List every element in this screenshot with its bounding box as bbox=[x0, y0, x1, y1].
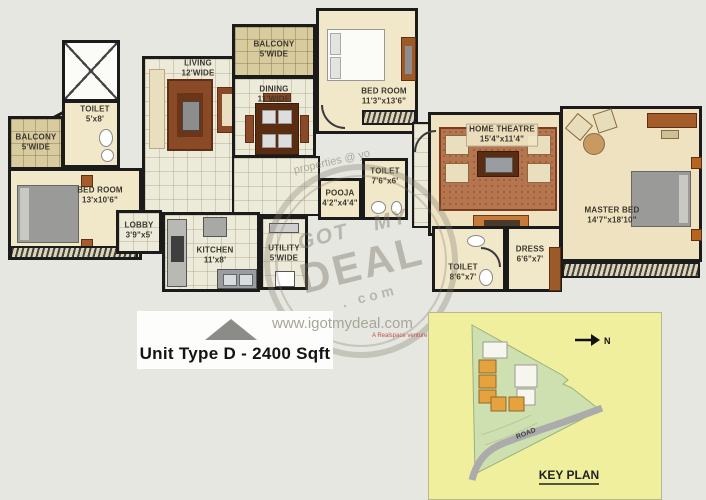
desk-chair bbox=[661, 130, 679, 139]
sofa bbox=[149, 69, 165, 149]
lounge-chair bbox=[592, 108, 617, 133]
theatre-seat bbox=[527, 163, 551, 183]
roof-triangle-icon bbox=[205, 319, 257, 340]
unit-type-label: Unit Type D - 2400 Sqft bbox=[137, 344, 333, 364]
north-label: N bbox=[604, 336, 611, 346]
toilet-wc-icon bbox=[479, 269, 493, 286]
room-dim: 6'6"x7' bbox=[516, 255, 545, 265]
room-dim: 11'WIDE bbox=[258, 95, 291, 105]
desk bbox=[647, 113, 697, 128]
north-arrow-icon bbox=[575, 334, 600, 346]
chair bbox=[245, 115, 254, 143]
room-label: UTILITY bbox=[268, 244, 300, 254]
carpet bbox=[167, 79, 213, 151]
toilet-wc-icon bbox=[371, 201, 386, 214]
website-tagline: A Realspace venture bbox=[372, 333, 427, 339]
room-dim: 8'6"x7' bbox=[448, 273, 478, 283]
key-plan-map: ROAD N KEY PLAN bbox=[429, 313, 659, 497]
balcony-railing-hatch bbox=[562, 262, 700, 278]
website-url: www.igotmydeal.com bbox=[272, 315, 413, 332]
side-table bbox=[691, 229, 702, 241]
room-dim: 11'x8' bbox=[197, 256, 234, 266]
room-label: LOBBY bbox=[125, 221, 154, 231]
door-arc bbox=[481, 247, 501, 267]
balcony-railing-hatch bbox=[362, 110, 416, 125]
chair bbox=[300, 115, 309, 143]
room-master-bed bbox=[560, 106, 702, 262]
counter-top bbox=[203, 217, 227, 237]
room-dim: 14'7"x18'10" bbox=[585, 216, 640, 226]
room-dim: 5'WIDE bbox=[254, 50, 295, 60]
room-label: LIVING bbox=[181, 59, 214, 69]
stamp-word-com: . com bbox=[340, 281, 399, 310]
door-arc bbox=[321, 105, 345, 129]
stamp-word-deal: DEAL bbox=[295, 226, 429, 303]
utility-rack bbox=[269, 223, 299, 233]
bed bbox=[327, 29, 385, 81]
room-dim: 7'6"x6' bbox=[370, 177, 400, 187]
room-label: BED ROOM bbox=[361, 87, 407, 97]
wash-basin-icon bbox=[467, 235, 485, 247]
room-label: MASTER BED bbox=[585, 206, 640, 216]
stairwell-box bbox=[62, 40, 120, 102]
round-table bbox=[583, 133, 605, 155]
room-dim: 11'3"x13'6" bbox=[361, 97, 407, 107]
washing-machine-icon bbox=[275, 271, 295, 287]
room-dim: 5'WIDE bbox=[16, 143, 57, 153]
room-label: TOILET bbox=[80, 105, 110, 115]
bed bbox=[17, 185, 79, 243]
wardrobe bbox=[549, 247, 561, 291]
sink-counter bbox=[217, 269, 257, 289]
room-dim: 5'WIDE bbox=[268, 254, 300, 264]
room-dim: 12'WIDE bbox=[181, 69, 214, 79]
bed bbox=[631, 171, 691, 227]
room-label: DRESS bbox=[516, 245, 545, 255]
room-label: POOJA bbox=[322, 189, 357, 199]
room-dim: 4'2"x4'4" bbox=[322, 199, 357, 209]
center-table bbox=[477, 151, 519, 177]
room-dim: 15'4"x11'4" bbox=[469, 135, 535, 145]
room-label: KITCHEN bbox=[197, 246, 234, 256]
room-dim: 13'x10'6" bbox=[77, 196, 123, 206]
room-dim: 5'x8' bbox=[80, 115, 110, 125]
key-plan-box: ROAD N KEY PLAN bbox=[428, 312, 662, 500]
room-label: BED ROOM bbox=[77, 186, 123, 196]
key-plan-title: KEY PLAN bbox=[539, 468, 599, 482]
geyser-icon bbox=[101, 149, 114, 162]
dining-table bbox=[255, 103, 299, 155]
wardrobe bbox=[401, 37, 416, 81]
theatre-seat bbox=[445, 163, 469, 183]
room-label: BALCONY bbox=[254, 40, 295, 50]
toilet-wc-icon bbox=[99, 129, 113, 147]
wash-basin-icon bbox=[391, 201, 402, 215]
room-label: TOILET bbox=[448, 263, 478, 273]
room-dim: 3'9"x5' bbox=[125, 231, 154, 241]
room-label: TOILET bbox=[370, 167, 400, 177]
side-table bbox=[691, 157, 702, 169]
kitchen-counter bbox=[167, 219, 187, 287]
floor-plan-page: TOILET 5'x8' BALCONY 5'WIDE BED ROOM 13'… bbox=[0, 0, 706, 500]
room-label: DINING bbox=[258, 85, 291, 95]
room-label: HOME THEATRE bbox=[469, 125, 535, 135]
room-label: BALCONY bbox=[16, 133, 57, 143]
